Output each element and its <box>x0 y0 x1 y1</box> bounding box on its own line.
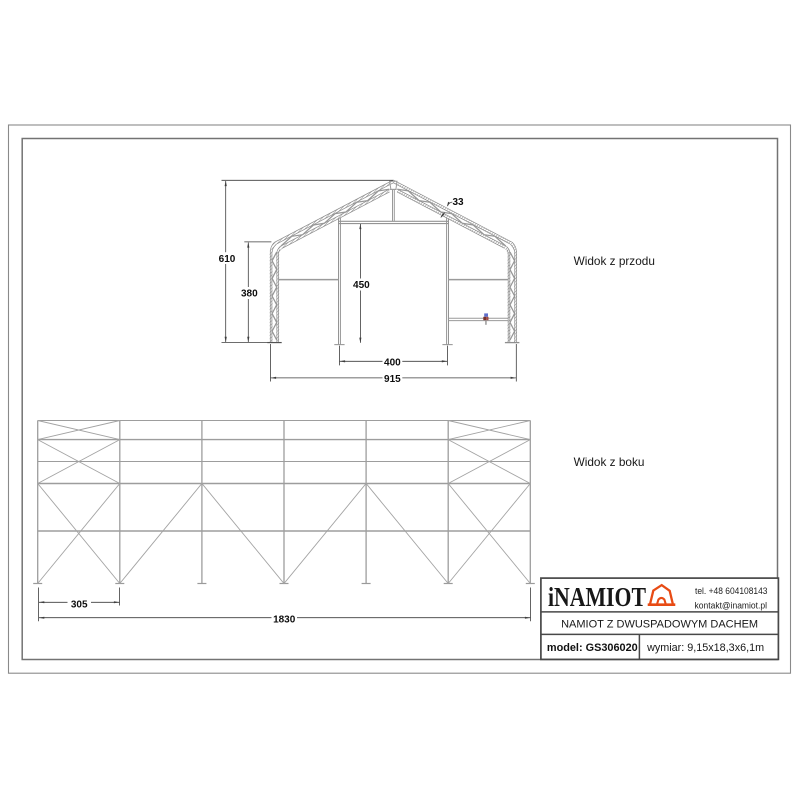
svg-text:kontakt@inamiot.pl: kontakt@inamiot.pl <box>695 600 768 610</box>
svg-text:610: 610 <box>219 254 236 265</box>
svg-text:380: 380 <box>241 289 258 300</box>
svg-text:450: 450 <box>353 280 370 291</box>
svg-text:wymiar: 9,15x18,3x6,1m: wymiar: 9,15x18,3x6,1m <box>646 642 764 654</box>
svg-text:33: 33 <box>452 197 464 208</box>
svg-text:tel. +48 604108143: tel. +48 604108143 <box>695 586 768 596</box>
svg-text:400: 400 <box>384 357 401 368</box>
svg-text:model: GS306020: model: GS306020 <box>547 642 638 654</box>
svg-text:305: 305 <box>71 599 88 610</box>
svg-text:Widok z przodu: Widok z przodu <box>574 254 655 268</box>
svg-text:iNAMIOT: iNAMIOT <box>548 582 646 612</box>
svg-text:Widok z boku: Widok z boku <box>574 455 645 469</box>
svg-text:915: 915 <box>384 374 401 385</box>
svg-text:1830: 1830 <box>273 615 296 626</box>
svg-text:NAMIOT Z DWUSPADOWYM DACHEM: NAMIOT Z DWUSPADOWYM DACHEM <box>561 618 758 630</box>
